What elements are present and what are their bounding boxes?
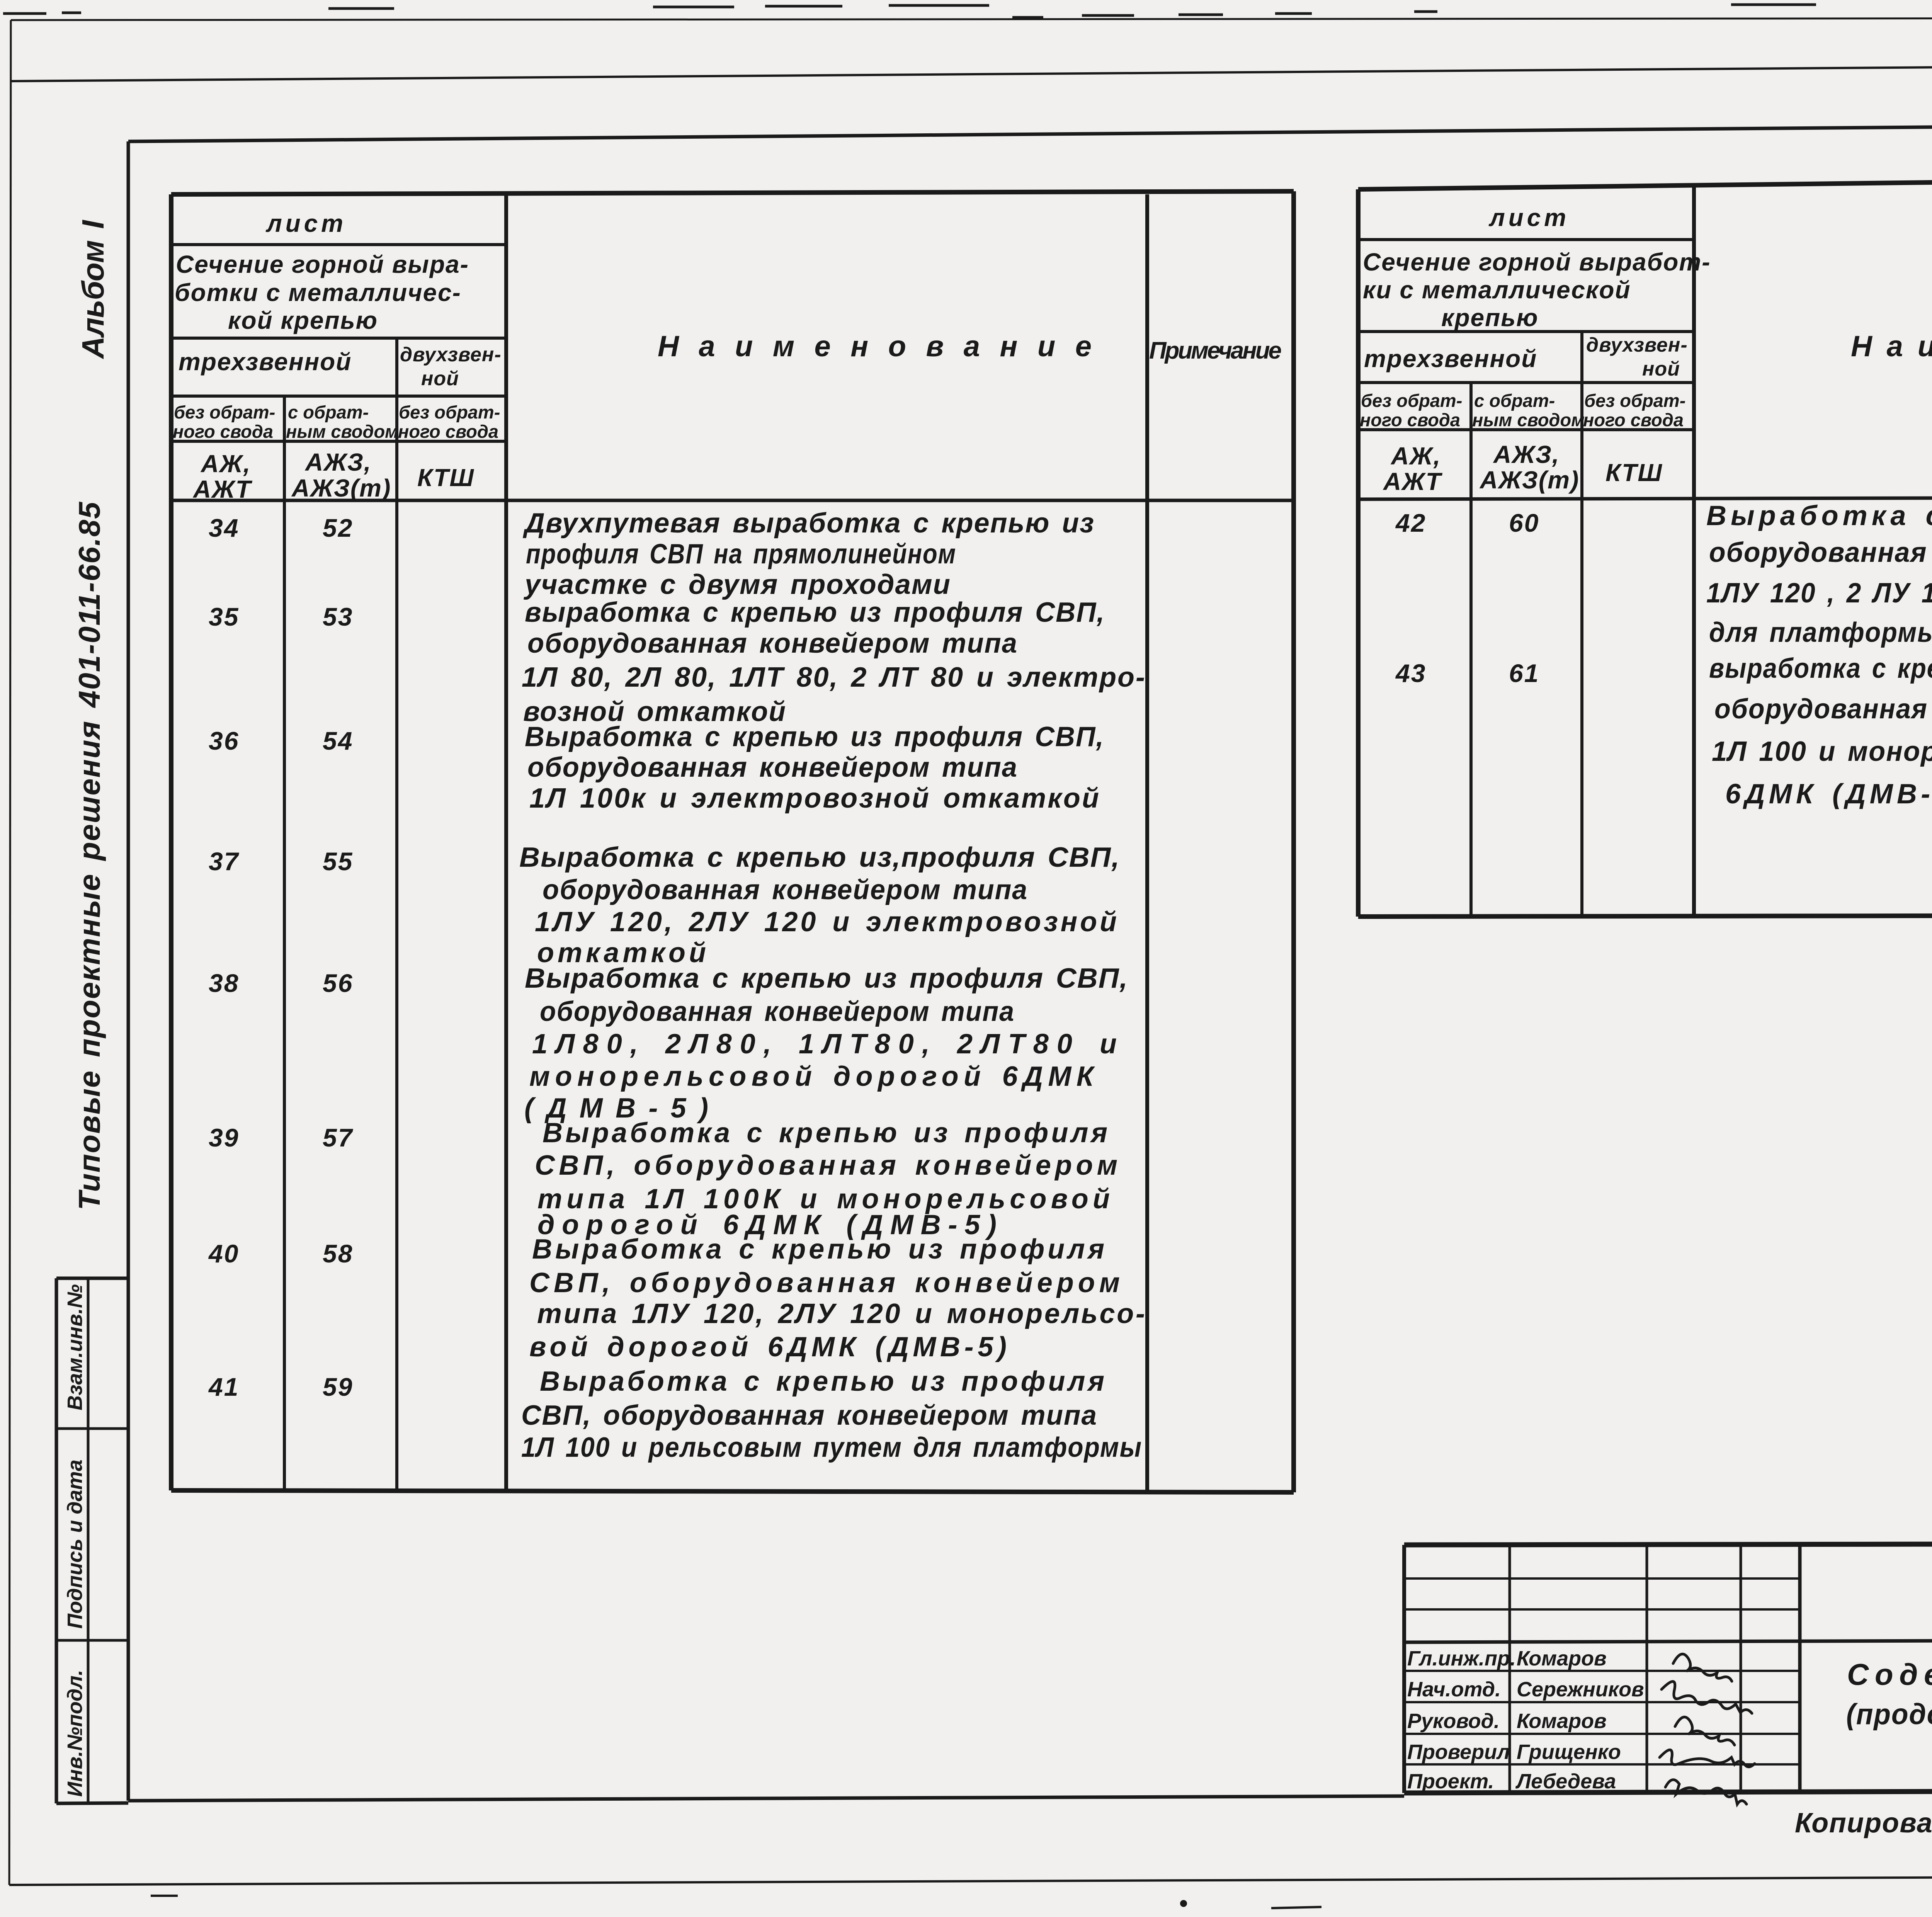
svg-text:38: 38 bbox=[209, 969, 239, 997]
svg-text:АЖЗ(т): АЖЗ(т) bbox=[1479, 466, 1579, 494]
svg-text:Сечение горной выра-: Сечение горной выра- bbox=[176, 250, 469, 278]
svg-text:53: 53 bbox=[323, 602, 353, 631]
svg-text:40: 40 bbox=[208, 1239, 239, 1268]
svg-text:1Л 100 и рельсовым путем д: 1Л 100 и рельсовым путем для платформы bbox=[521, 1432, 1142, 1463]
svg-text:профиля СВП на прямолинейно: профиля СВП на прямолинейном bbox=[526, 539, 956, 570]
svg-text:Двухпутевая выработка с креп: Двухпутевая выработка с крепью из bbox=[522, 508, 1095, 539]
svg-text:Комаров: Комаров bbox=[1517, 1709, 1607, 1733]
svg-text:1Л 100к и электровозной отка: 1Л 100к и электровозной откаткой bbox=[529, 783, 1100, 814]
svg-text:л и с т: л и с т bbox=[265, 209, 344, 237]
svg-text:Взам.инв.№: Взам.инв.№ bbox=[63, 1284, 87, 1410]
svg-text:55: 55 bbox=[323, 847, 353, 876]
svg-text:монорельсовой дорогой 6ДМК: монорельсовой дорогой 6ДМК bbox=[529, 1061, 1095, 1092]
svg-text:Руковод.: Руковод. bbox=[1407, 1709, 1500, 1733]
svg-text:ной: ной bbox=[421, 367, 459, 390]
svg-text:ного свода: ного свода bbox=[398, 421, 498, 442]
svg-text:61: 61 bbox=[1509, 659, 1539, 687]
svg-text:34: 34 bbox=[209, 514, 239, 542]
svg-text:оборудованная конвейером типа: оборудованная конвейером типа bbox=[1714, 694, 1932, 725]
svg-text:Нач.отд.: Нач.отд. bbox=[1407, 1678, 1501, 1701]
svg-text:Выработка с крепью из профи: Выработка с крепью из профиля СВП, bbox=[525, 721, 1104, 752]
svg-text:АЖ,: АЖ, bbox=[1390, 442, 1441, 470]
svg-text:60: 60 bbox=[1509, 509, 1539, 537]
svg-text:ного свода: ного свода bbox=[1360, 410, 1460, 430]
svg-text:Подпись и дата: Подпись и дата bbox=[63, 1459, 87, 1629]
svg-text:АЖЗ,: АЖЗ, bbox=[304, 448, 372, 476]
svg-text:Примечание: Примечание bbox=[1149, 337, 1282, 364]
svg-text:КТШ: КТШ bbox=[1605, 459, 1663, 486]
svg-text:ки с металлической: ки с металлической bbox=[1363, 276, 1631, 304]
svg-text:КТШ: КТШ bbox=[417, 464, 474, 492]
svg-text:ботки с металличес-: ботки с металличес- bbox=[175, 279, 461, 306]
svg-text:Комаров: Комаров bbox=[1517, 1647, 1607, 1670]
svg-text:л и с т: л и с т bbox=[1488, 204, 1567, 231]
svg-text:Копировал: Копировал bbox=[1795, 1808, 1932, 1839]
svg-text:57: 57 bbox=[323, 1123, 354, 1152]
svg-text:1ЛУ 120 , 2 ЛУ 120 и рельсов: 1ЛУ 120 , 2 ЛУ 120 и рельсовым путем bbox=[1706, 578, 1932, 609]
svg-text:АЖЗ,: АЖЗ, bbox=[1493, 441, 1560, 468]
svg-text:Выработка с крепью из профил: Выработка с крепью из профиля СВП, bbox=[525, 963, 1128, 994]
svg-text:АЖТ: АЖТ bbox=[1383, 468, 1443, 495]
svg-text:39: 39 bbox=[209, 1123, 239, 1152]
svg-text:58: 58 bbox=[323, 1239, 353, 1268]
svg-text:оборудованная конвейером тип: оборудованная конвейером типа bbox=[540, 996, 1015, 1027]
svg-text:АЖЗ(т): АЖЗ(т) bbox=[291, 474, 391, 502]
svg-text:вой дорогой 6ДМК (ДМВ-5): вой дорогой 6ДМК (ДМВ-5) bbox=[529, 1332, 1007, 1362]
svg-text:42: 42 bbox=[1395, 509, 1426, 537]
svg-text:Инв.№подл.: Инв.№подл. bbox=[63, 1670, 87, 1797]
svg-text:(продолжение): (продолжение) bbox=[1846, 1698, 1932, 1731]
svg-text:Альбом I: Альбом I bbox=[76, 219, 110, 359]
svg-text:без обрат-: без обрат- bbox=[1361, 390, 1462, 411]
svg-text:с обрат-: с обрат- bbox=[288, 402, 369, 422]
svg-text:Гл.инж.пр.: Гл.инж.пр. bbox=[1407, 1647, 1516, 1670]
svg-text:с обрат-: с обрат- bbox=[1474, 390, 1555, 411]
svg-text:Грищенко: Грищенко bbox=[1517, 1740, 1621, 1764]
svg-text:СВП, оборудованная конвейеро: СВП, оборудованная конвейером bbox=[535, 1150, 1118, 1181]
svg-text:оборудованная конвейером тип: оборудованная конвейером типа bbox=[527, 752, 1018, 783]
svg-text:Типовые проектные решения 401-: Типовые проектные решения 401-011-66.85 bbox=[72, 501, 106, 1210]
svg-text:35: 35 bbox=[209, 602, 239, 631]
svg-text:трехзвенной: трехзвенной bbox=[179, 348, 352, 376]
svg-text:36: 36 bbox=[209, 726, 239, 755]
svg-text:СВП, оборудованная конвейеро: СВП, оборудованная конвейером типа bbox=[521, 1400, 1097, 1431]
svg-text:без обрат-: без обрат- bbox=[174, 402, 275, 422]
svg-text:трехзвенной: трехзвенной bbox=[1364, 345, 1537, 373]
svg-text:41: 41 bbox=[208, 1373, 239, 1401]
svg-text:Сечение горной выработ-: Сечение горной выработ- bbox=[1363, 248, 1711, 276]
svg-text:типа 1ЛУ 120, 2ЛУ 120 и моно: типа 1ЛУ 120, 2ЛУ 120 и монорельсо- bbox=[537, 1298, 1146, 1329]
svg-text:АЖТ: АЖТ bbox=[192, 475, 253, 503]
svg-text:без обрат-: без обрат- bbox=[399, 402, 500, 422]
svg-text:Лебедева: Лебедева bbox=[1515, 1770, 1616, 1793]
svg-text:56: 56 bbox=[323, 969, 353, 997]
svg-text:оборудованная конвейером тип: оборудованная конвейером типа bbox=[543, 874, 1028, 905]
svg-text:двухзвен-: двухзвен- bbox=[1586, 334, 1688, 356]
svg-text:выработка с крепью из профил: выработка с крепью из профиля СВП, bbox=[1709, 653, 1932, 684]
svg-text:1ЛУ 120, 2ЛУ 120 и электрово: 1ЛУ 120, 2ЛУ 120 и электровозной bbox=[535, 907, 1117, 937]
svg-text:без обрат-: без обрат- bbox=[1584, 390, 1685, 411]
svg-text:оборудованная конвейером тип: оборудованная конвейером типа bbox=[527, 628, 1018, 659]
svg-text:Сережников: Сережников bbox=[1517, 1678, 1644, 1701]
svg-text:54: 54 bbox=[323, 726, 353, 755]
svg-text:37: 37 bbox=[209, 847, 240, 876]
svg-text:выработка с крепью из профи: выработка с крепью из профиля СВП, bbox=[525, 597, 1105, 628]
svg-text:ным сводом: ным сводом bbox=[286, 421, 398, 442]
svg-text:ного свода: ного свода bbox=[173, 421, 273, 442]
svg-text:крепью: крепью bbox=[1441, 304, 1539, 332]
svg-text:двухзвен-: двухзвен- bbox=[400, 344, 502, 366]
svg-text:Проверил: Проверил bbox=[1407, 1740, 1510, 1764]
svg-text:ной: ной bbox=[1642, 358, 1680, 380]
svg-text:1Л 80, 2Л 80, 1ЛТ 80, 2 ЛТ 80: 1Л 80, 2Л 80, 1ЛТ 80, 2 ЛТ 80 и электро- bbox=[522, 662, 1146, 693]
svg-text:6ДМК (ДМВ-5): 6ДМК (ДМВ-5) bbox=[1725, 779, 1932, 810]
svg-text:43: 43 bbox=[1395, 659, 1426, 687]
svg-text:АЖ,: АЖ, bbox=[200, 450, 251, 478]
svg-text:кой крепью: кой крепью bbox=[228, 306, 378, 334]
svg-text:ного свода: ного свода bbox=[1583, 410, 1684, 430]
svg-text:СВП, оборудованная конвейеро: СВП, оборудованная конвейером bbox=[529, 1267, 1121, 1298]
svg-text:Н а и м е н о в а н и е: Н а и м е н о в а н и е bbox=[1851, 330, 1932, 363]
svg-text:ным сводом: ным сводом bbox=[1472, 410, 1585, 430]
svg-text:Проект.: Проект. bbox=[1407, 1770, 1494, 1793]
svg-text:для платформы: для платформы bbox=[1709, 617, 1932, 648]
svg-text:1Л 100 и монорельсовой дорог: 1Л 100 и монорельсовой дорогой bbox=[1712, 736, 1932, 767]
svg-text:52: 52 bbox=[323, 514, 353, 542]
svg-text:Н а и м е н о в а н и е: Н а и м е н о в а н и е bbox=[658, 330, 1092, 363]
svg-text:59: 59 bbox=[323, 1373, 353, 1401]
svg-text:участке с двумя проходами: участке с двумя проходами bbox=[524, 569, 951, 600]
svg-text:Выработка с крепью из,профил: Выработка с крепью из,профиля СВП, bbox=[519, 842, 1120, 873]
svg-text:оборудованная конвейером тип: оборудованная конвейером типа bbox=[1709, 537, 1932, 568]
